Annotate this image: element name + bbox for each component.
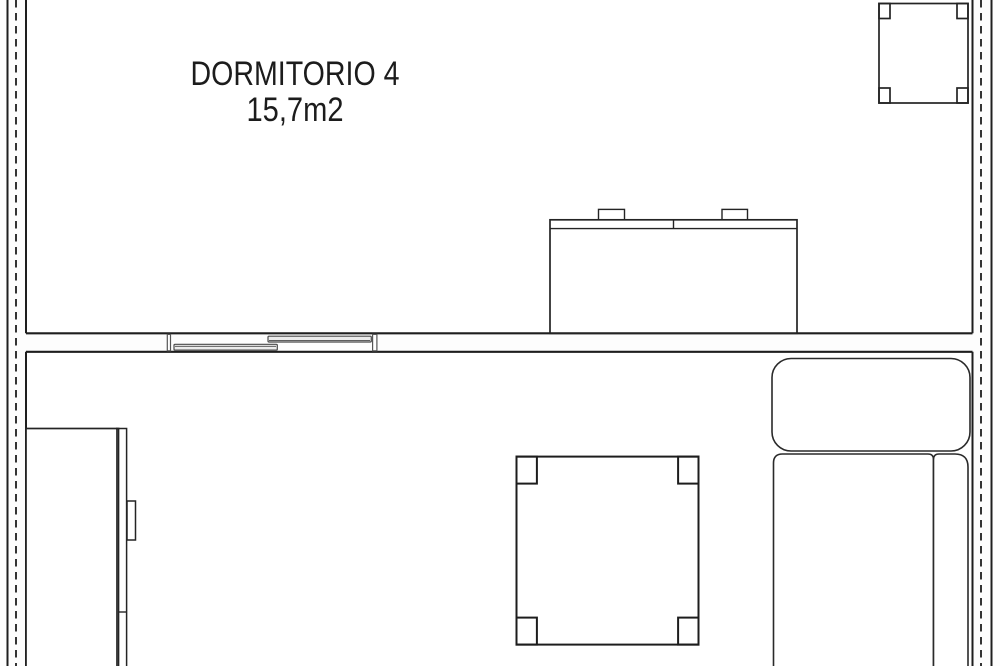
svg-text:15,7m2: 15,7m2	[247, 91, 344, 129]
svg-text:DORMITORIO 4: DORMITORIO 4	[191, 55, 400, 93]
